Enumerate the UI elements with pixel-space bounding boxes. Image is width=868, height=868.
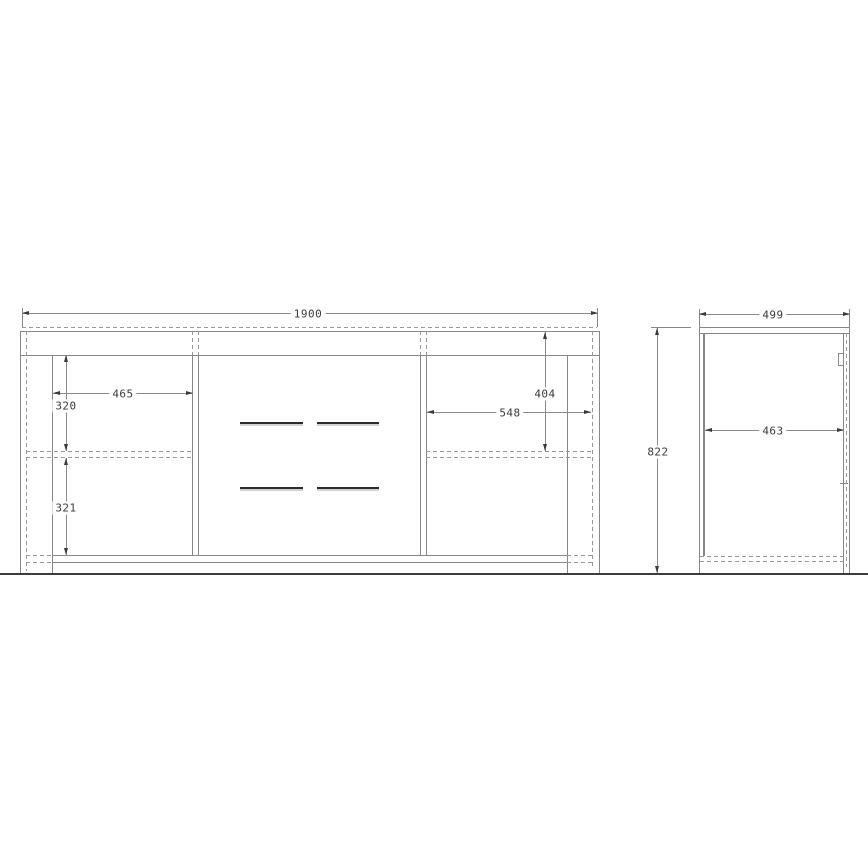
drawer-handle-bottom-left	[240, 487, 303, 489]
side-plinth-hidden-bottom	[700, 561, 845, 562]
front-right-edge	[599, 331, 600, 573]
front-right-divider-a	[420, 355, 421, 555]
front-bottom-rail-hidden-right-bottom	[567, 562, 593, 563]
side-back-hidden-line	[846, 333, 847, 567]
dim-548-arrow-right	[584, 410, 591, 414]
front-bottom-rail-hidden-left-bottom	[26, 562, 52, 563]
side-back-inner-line	[843, 333, 844, 573]
side-top-edge	[699, 327, 850, 328]
front-right-shelf-hidden-top	[426, 451, 593, 452]
dim-label-left-upper-height: 320	[52, 400, 79, 413]
dim-321-arrow-top	[64, 458, 68, 465]
dim-label-inner-depth: 463	[759, 425, 786, 438]
dim-404-arrow-bottom	[543, 444, 547, 451]
dim-label-right-upper-height: 404	[531, 388, 558, 401]
front-inner-right-panel	[567, 355, 568, 573]
dim-label-left-lower-height: 321	[52, 502, 79, 515]
front-bottom-rail-hidden-left-top	[26, 555, 52, 556]
front-right-divider-hidden-a	[420, 331, 421, 355]
dim-label-left-compartment-width: 465	[109, 388, 136, 401]
front-right-hidden-line	[592, 331, 593, 566]
front-left-shelf-hidden-top	[26, 451, 192, 452]
side-top-panel-bottom-edge	[699, 333, 850, 334]
side-hinge-notch	[838, 353, 844, 366]
front-bottom-rail-top-edge	[52, 555, 567, 556]
dim-320-arrow-bottom	[64, 444, 68, 451]
front-right-shelf-hidden-bottom	[426, 457, 593, 458]
dim-404-arrow-top	[543, 332, 547, 339]
side-door-front-line	[703, 333, 705, 556]
front-right-divider-hidden-b	[426, 331, 427, 355]
dim-320-arrow-top	[64, 355, 68, 362]
dim-463-arrow-right	[837, 428, 844, 432]
front-left-edge	[20, 331, 21, 573]
technical-drawing-canvas: 1900 465 320 321 548 404 822	[0, 0, 868, 868]
front-left-divider-hidden-a	[192, 331, 193, 355]
dim-1900-arrow-right	[591, 311, 598, 315]
front-bottom-rail-bottom-edge	[52, 562, 567, 563]
side-plinth-hidden-top	[700, 556, 845, 557]
front-left-shelf-hidden-bottom	[26, 457, 192, 458]
dim-465-arrow-right	[186, 391, 193, 395]
dim-label-total-depth: 499	[759, 309, 786, 322]
dim-label-total-width: 1900	[291, 308, 326, 321]
front-left-divider-hidden-b	[198, 331, 199, 355]
dim-321-arrow-bottom	[64, 548, 68, 555]
front-left-divider-b	[198, 355, 199, 555]
front-top-rail-bottom-edge	[20, 355, 600, 356]
drawer-handle-top-left	[240, 422, 303, 424]
dim-label-total-height: 822	[644, 446, 671, 459]
dim-822-arrow-bottom	[655, 566, 659, 573]
dim-499-arrow-left	[699, 312, 706, 316]
dim-label-right-compartment-width: 548	[496, 407, 523, 420]
dim-1900-arrow-left	[22, 311, 29, 315]
dim-465-arrow-left	[53, 391, 60, 395]
dim-822-arrow-top	[655, 328, 659, 335]
dim-499-arrow-right	[843, 312, 850, 316]
front-left-divider-a	[192, 355, 193, 555]
front-bottom-rail-hidden-right-top	[567, 555, 593, 556]
side-right-edge	[849, 327, 850, 573]
drawer-handle-bottom-right	[317, 487, 379, 489]
side-back-tick	[840, 483, 848, 484]
drawer-handle-top-right	[317, 422, 379, 424]
front-top-hidden-edge	[22, 327, 597, 328]
front-top-edge	[20, 331, 600, 332]
ground-line	[0, 573, 868, 575]
front-right-divider-b	[426, 355, 427, 555]
side-left-edge	[699, 327, 700, 573]
dim-463-arrow-left	[705, 428, 712, 432]
dim-548-arrow-left	[427, 410, 434, 414]
front-inner-left-panel	[52, 355, 53, 573]
